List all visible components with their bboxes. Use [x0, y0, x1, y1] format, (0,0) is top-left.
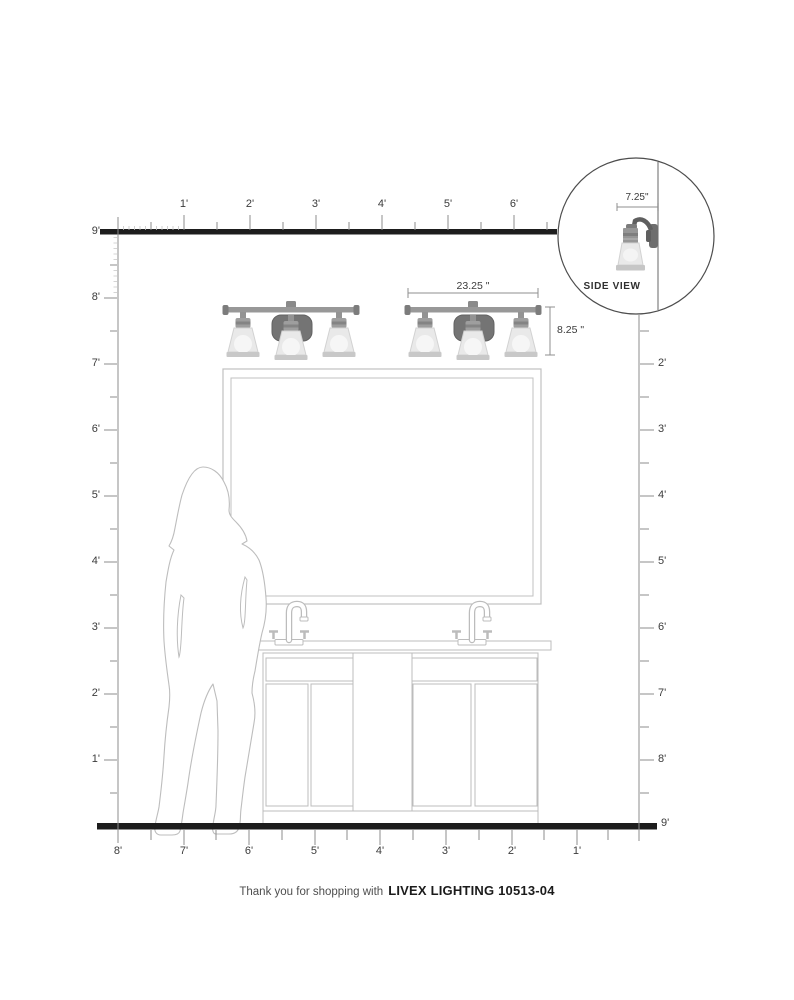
right-ruler-label: 6' — [658, 621, 666, 634]
bottom-ruler-label: 3' — [431, 845, 461, 858]
left-ruler-label: 1' — [72, 753, 100, 766]
left-ruler — [104, 217, 118, 843]
right-ruler-label: 2' — [658, 357, 666, 370]
bottom-ruler-label: 7' — [169, 845, 199, 858]
side-view-label: SIDE VIEW — [567, 281, 657, 292]
right-ruler-label: 9' — [661, 817, 669, 830]
bottom-ruler-label: 4' — [365, 845, 395, 858]
right-ruler-label: 3' — [658, 423, 666, 436]
vanity-light-left — [223, 301, 360, 360]
top-ruler — [124, 215, 548, 230]
bottom-ruler-label: 2' — [497, 845, 527, 858]
right-ruler-label: 4' — [658, 489, 666, 502]
footer-product-name: LIVEX LIGHTING 10513-04 — [388, 883, 554, 898]
fixture-height-dimension: 8.25 " — [557, 324, 584, 336]
left-ruler-label: 9' — [72, 225, 100, 238]
faucet-left — [269, 604, 309, 645]
footer: Thank you for shopping withLIVEX LIGHTIN… — [0, 882, 794, 900]
vanity-light-right — [405, 301, 542, 360]
left-ruler-label: 6' — [72, 423, 100, 436]
bottom-ruler-label: 6' — [234, 845, 264, 858]
faucet-right — [452, 604, 492, 645]
right-ruler-label: 8' — [658, 753, 666, 766]
right-ruler-label: 7' — [658, 687, 666, 700]
ceiling-line — [100, 229, 557, 235]
top-ruler-label: 5' — [433, 198, 463, 211]
left-ruler-label: 5' — [72, 489, 100, 502]
top-ruler-label: 4' — [367, 198, 397, 211]
side-view-depth-dimension: 7.25" — [597, 192, 677, 204]
left-ruler-label: 7' — [72, 357, 100, 370]
bottom-ruler-label: 8' — [103, 845, 133, 858]
bottom-ruler-label: 5' — [300, 845, 330, 858]
vanity-cabinet — [258, 641, 551, 826]
floor-line — [97, 823, 657, 830]
footer-message: Thank you for shopping with — [239, 886, 383, 898]
right-ruler — [639, 315, 654, 841]
left-ruler-label: 8' — [72, 291, 100, 304]
vanity-mirror — [223, 369, 541, 604]
left-ruler-label: 3' — [72, 621, 100, 634]
right-ruler-label: 5' — [658, 555, 666, 568]
left-ruler-label: 4' — [72, 555, 100, 568]
bottom-ruler-label: 1' — [562, 845, 592, 858]
left-ruler-label: 2' — [72, 687, 100, 700]
fixture-width-dimension: 23.25 " — [433, 280, 513, 292]
top-ruler-label: 2' — [235, 198, 265, 211]
top-ruler-label: 3' — [301, 198, 331, 211]
top-ruler-label: 6' — [499, 198, 529, 211]
top-ruler-label: 1' — [169, 198, 199, 211]
dimension-diagram-page: 1' 2' 3' 4' 5' 6' 9' 8' 7' 6' 5' 4' 3' 2… — [0, 0, 794, 1000]
height-dimension-line — [545, 307, 555, 355]
